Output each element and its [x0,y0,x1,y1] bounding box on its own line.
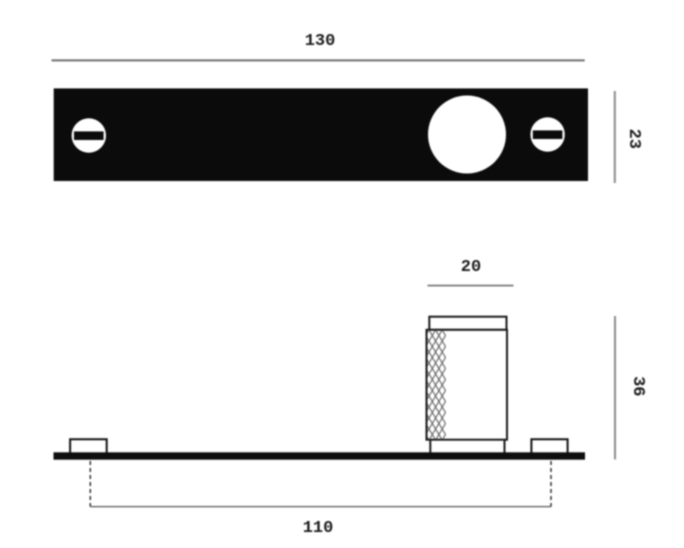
svg-text:110: 110 [303,519,334,538]
svg-text:20: 20 [461,258,481,277]
svg-text:130: 130 [305,32,336,51]
svg-text:23: 23 [624,129,643,149]
svg-text:36: 36 [628,376,647,396]
